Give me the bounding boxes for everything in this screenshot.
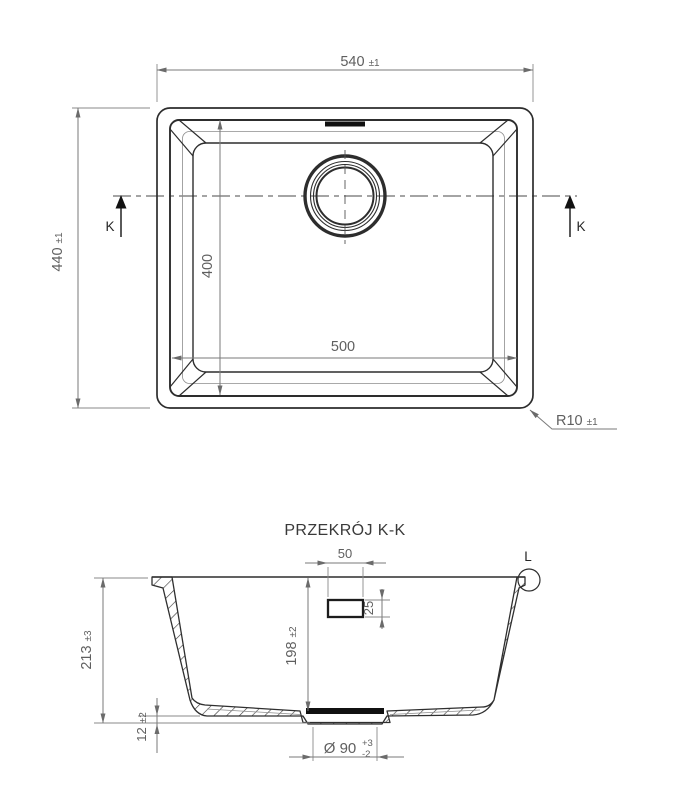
dim-depth: 198±2 — [284, 578, 308, 711]
section-view: PRZEKRÓJ K-K L 50 25 — [79, 520, 540, 761]
detail-label-L: L — [524, 549, 532, 564]
dim-drain-tol-minus: -2 — [362, 749, 370, 760]
section-label-right: K — [576, 219, 585, 234]
overflow-opening-section — [328, 600, 363, 617]
dim-drain-tol-plus: +3 — [362, 738, 373, 749]
sink-bowl-bottom-edge — [193, 143, 493, 372]
dim-drain-diameter: Ø 90 +3 -2 — [289, 727, 404, 761]
technical-drawing-sink: 540±1 440±1 400 500 R10±1 K — [0, 0, 682, 800]
drawing-canvas: 540±1 440±1 400 500 R10±1 K — [0, 0, 682, 800]
dim-corner-radius: R10±1 — [530, 410, 617, 429]
dim-inner-height: 400 — [200, 120, 220, 395]
overflow-slot — [325, 122, 365, 127]
dim-total-height-label: 213±3 — [79, 630, 95, 670]
section-arrow-right — [565, 195, 576, 209]
section-label-left: K — [105, 219, 114, 234]
dim-outer-width: 540±1 — [157, 54, 533, 102]
dim-outer-height-label: 440±1 — [50, 232, 66, 272]
section-arrow-left — [116, 195, 127, 209]
section-title: PRZEKRÓJ K-K — [284, 520, 405, 539]
dim-inner-width: 500 — [172, 339, 517, 358]
dim-overflow-width-label: 50 — [338, 546, 352, 561]
drain — [305, 150, 385, 244]
dim-inner-height-label: 400 — [200, 254, 216, 278]
dim-overflow-height-label: 25 — [361, 601, 376, 615]
dim-bottom-step-label: 12±2 — [134, 712, 149, 742]
section-marker-left: K — [105, 195, 126, 237]
dim-bottom-step: 12±2 — [134, 698, 200, 753]
dim-inner-width-label: 500 — [331, 339, 355, 355]
dim-outer-height: 440±1 — [50, 108, 150, 408]
dim-drain-value: Ø 90 — [324, 740, 357, 757]
drain-opening-section — [306, 708, 384, 714]
dim-outer-width-label: 540±1 — [340, 54, 380, 70]
dim-overflow-height: 25 — [361, 589, 390, 629]
top-view: 540±1 440±1 400 500 R10±1 K — [50, 54, 617, 429]
dim-corner-radius-label: R10±1 — [556, 413, 598, 429]
dim-overflow-width: 50 — [305, 546, 386, 597]
dim-depth-label: 198±2 — [284, 626, 300, 666]
section-marker-right: K — [565, 195, 586, 237]
